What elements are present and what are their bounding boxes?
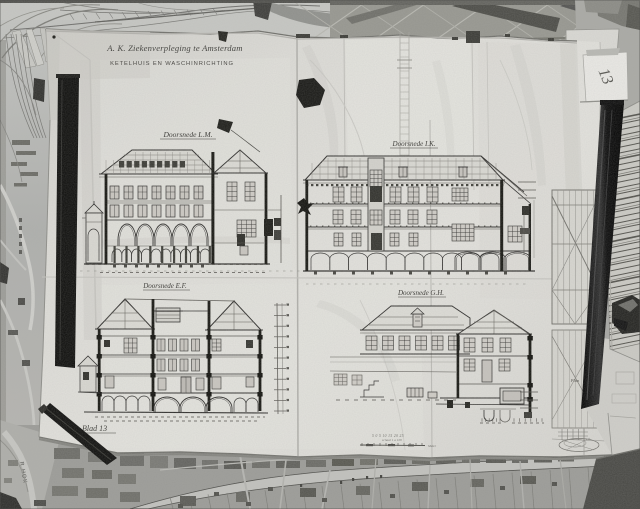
svg-text:schaal 1 a 100: schaal 1 a 100 [382, 438, 402, 442]
svg-text:A. K. Ziekenverpleging te Amst: A. K. Ziekenverpleging te Amsterdam [106, 43, 242, 53]
svg-text:Meter: Meter [427, 444, 437, 448]
svg-text:Doorsnede E.F.: Doorsnede E.F. [142, 282, 187, 290]
svg-text:Doorsnede I.K.: Doorsnede I.K. [392, 140, 436, 148]
svg-text:Doorsnede L.M.: Doorsnede L.M. [163, 130, 213, 139]
svg-text:KETELHUIS EN WASCHINRICHTING: KETELHUIS EN WASCHINRICHTING [110, 61, 234, 67]
svg-text:Plan: Plan [570, 378, 580, 383]
svg-text:Doorsnede G.H.: Doorsnede G.H. [397, 289, 444, 297]
svg-text:Blad 13: Blad 13 [82, 424, 107, 433]
